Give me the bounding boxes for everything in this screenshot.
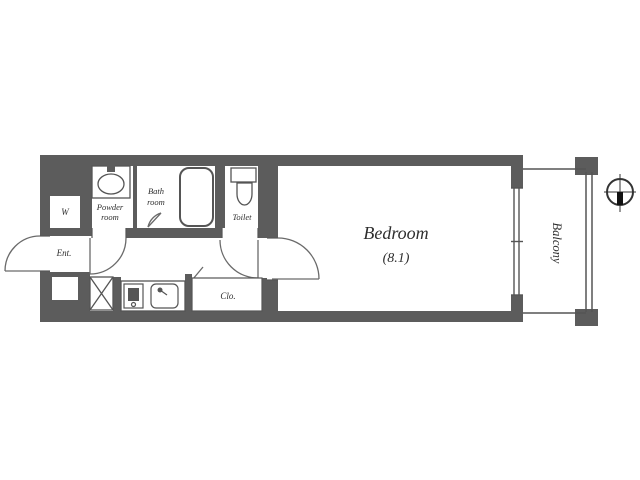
w-closet-bottom-wall <box>50 228 80 236</box>
bedroom-label: Bedroom <box>363 223 428 243</box>
powder-bath-divider <box>133 164 137 228</box>
bedroom-window <box>511 188 523 295</box>
floorplan-drawing: W Powder room Bath room Toilet Ent. Clo.… <box>0 0 640 480</box>
bottom-wall <box>40 311 523 322</box>
entrance-door-arc <box>5 236 40 271</box>
entry-divider-wall <box>80 155 92 236</box>
compass-icon <box>604 174 636 212</box>
floorplan-canvas: W Powder room Bath room Toilet Ent. Clo.… <box>0 0 640 480</box>
entrance-step <box>52 277 78 300</box>
bedroom-right-wall-upper <box>511 155 523 188</box>
balcony-label: Balcony <box>550 223 564 264</box>
bedroom-left-wall-upper <box>267 155 278 238</box>
bedroom-left-wall-lower <box>267 280 278 322</box>
kitchen-stub-right <box>185 274 192 311</box>
bath-room-label-line1: Bath <box>148 186 164 196</box>
bedroom-size-label: (8.1) <box>383 251 410 266</box>
toilet-right-wall <box>258 164 267 238</box>
bath-toilet-divider <box>215 164 225 228</box>
entrance-label: Ent. <box>56 248 72 258</box>
powder-room-label-line1: Powder <box>96 202 124 212</box>
hall-top-wall <box>126 228 222 238</box>
bedroom-right-wall-lower <box>511 295 523 322</box>
left-wall-lower <box>40 271 50 322</box>
washer-icon <box>90 277 113 310</box>
closet-label: Clo. <box>220 291 235 301</box>
toilet-label: Toilet <box>232 212 252 222</box>
closet-right-wall <box>262 278 267 311</box>
bath-room-label-line2: room <box>147 197 165 207</box>
kitchen-stub-left <box>113 277 121 311</box>
powder-room-label-line2: room <box>101 212 119 222</box>
